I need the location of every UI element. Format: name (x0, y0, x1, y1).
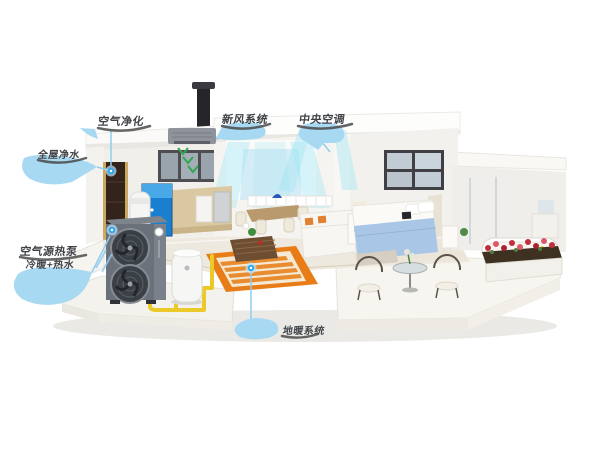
label-air-purifier: 空气净化 (97, 113, 145, 129)
label-fresh-air-system: 新风系统 (221, 111, 269, 127)
fan-top (111, 229, 149, 267)
balustrade (248, 196, 332, 206)
dot-heat-pump (107, 225, 118, 236)
fresh-air-ceiling-unit (168, 128, 216, 144)
plant (248, 228, 256, 236)
fan-bottom (111, 265, 149, 303)
label-floor-heating: 地暖系统 (282, 322, 326, 337)
dot-floor-heating (246, 263, 257, 274)
label-central-ac: 中央空调 (298, 111, 346, 127)
brand-logo (155, 228, 163, 236)
fridge (214, 192, 230, 222)
roof-duct-cap (192, 82, 215, 89)
bathroom-vanity (532, 214, 558, 238)
bathroom-mirror (538, 200, 554, 214)
label-heat-pump-line2: 冷暖+热水 (25, 256, 75, 271)
screenshot-root: 空气净化 全屋净水 新风系统 中央空调 空气源热泵 冷暖+热水 地暖系统 (0, 0, 600, 450)
dot-cabinet (106, 166, 117, 177)
hot-water-tank (171, 249, 203, 305)
house-cutaway-illustration (0, 0, 600, 450)
nightstand (442, 226, 458, 248)
bathroom-plant (460, 228, 468, 236)
label-water-purification: 全屋净水 (37, 146, 81, 161)
